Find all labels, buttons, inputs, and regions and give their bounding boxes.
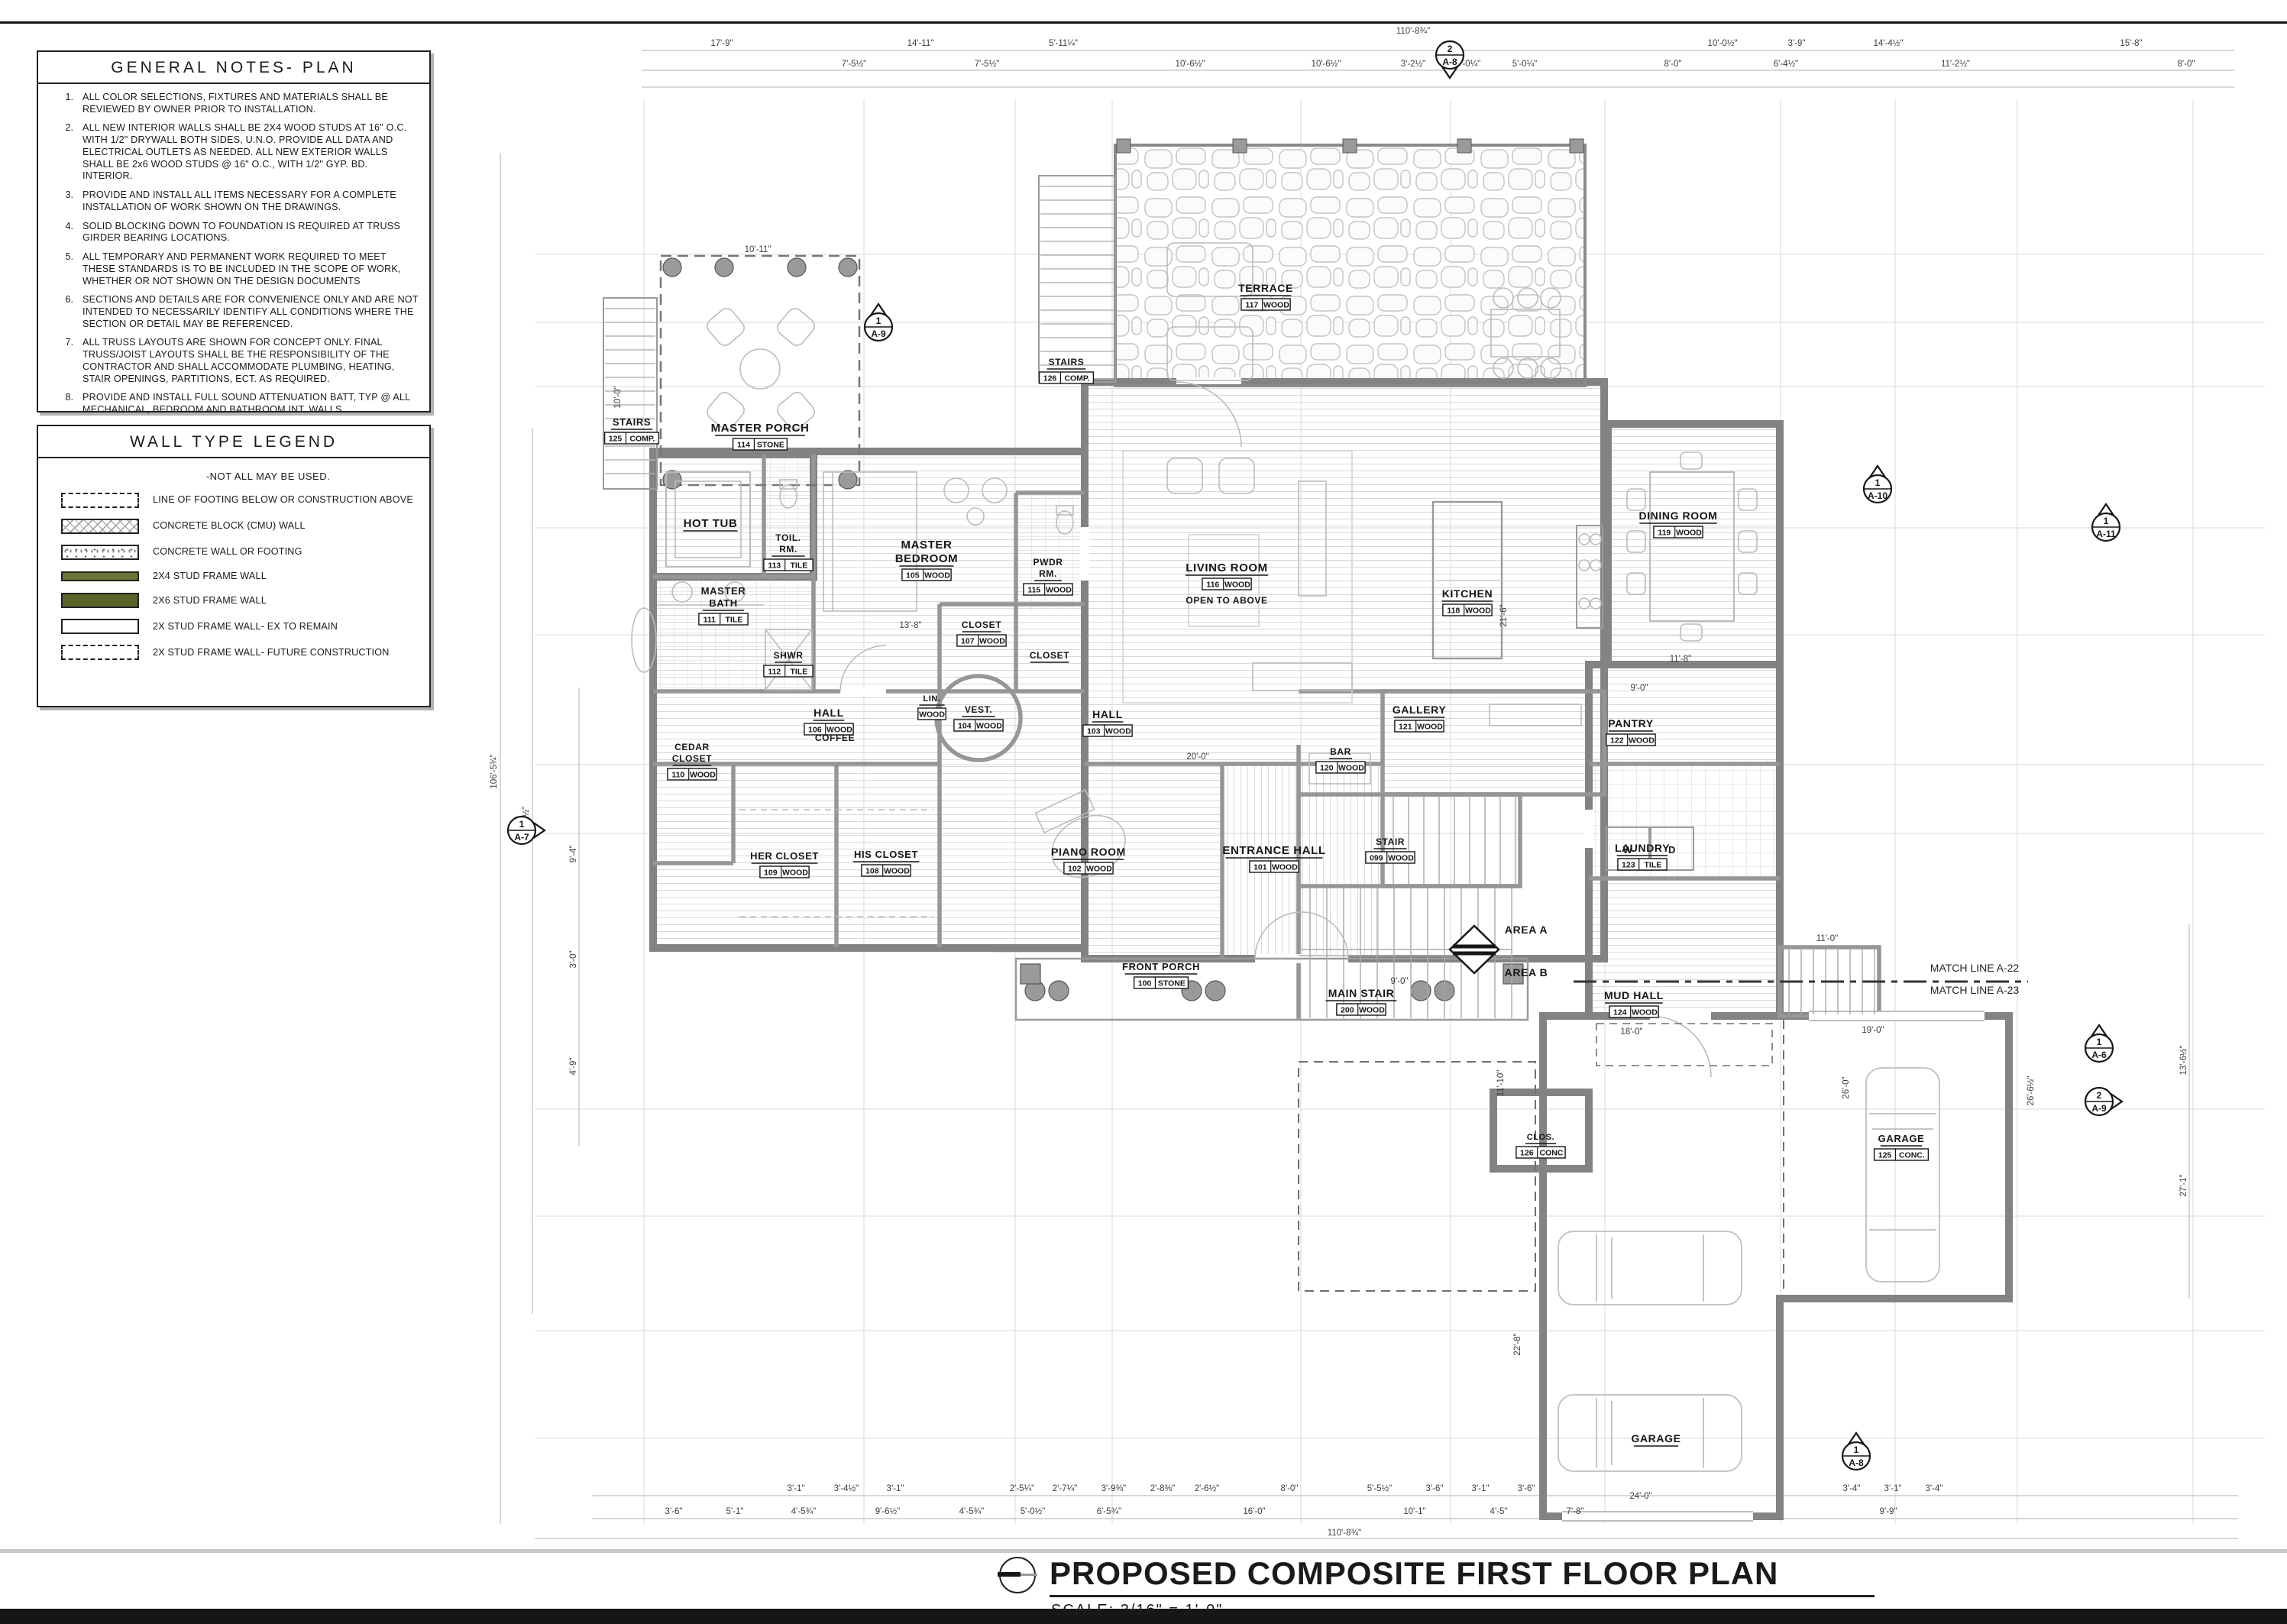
match-line-label: MATCH LINE A-22: [1930, 962, 2020, 974]
room-label-kitchen: KITCHEN118WOOD: [1442, 587, 1493, 616]
svg-text:120: 120: [1320, 764, 1334, 773]
svg-text:HER CLOSET: HER CLOSET: [750, 850, 819, 862]
svg-text:MAIN STAIR: MAIN STAIR: [1328, 987, 1395, 999]
svg-text:119: 119: [1658, 529, 1671, 538]
dimension-text: 26'-6½": [2027, 1076, 2036, 1106]
section-marker-a-9-2: 2A-9: [2085, 1088, 2122, 1115]
dimension-text: 5'-11¼": [1049, 39, 1078, 48]
room-label-master-bedroom: MASTERBEDROOM105WOOD: [895, 539, 959, 581]
dimension-text: 3'-6": [665, 1507, 683, 1516]
svg-text:STAIRS: STAIRS: [1049, 357, 1085, 367]
svg-text:WOOD: WOOD: [924, 571, 950, 581]
dimension-text: 13'-6½": [2179, 1046, 2188, 1076]
section-marker-a-6-1: 1A-6: [2085, 1025, 2113, 1062]
svg-text:2: 2: [1448, 44, 1453, 54]
svg-text:TERRACE: TERRACE: [1238, 282, 1293, 294]
dimension-text: 11'-0": [1816, 934, 1838, 943]
svg-text:HOT TUB: HOT TUB: [684, 517, 738, 530]
section-marker-a-7-1: 1A-7: [508, 817, 545, 844]
svg-text:114: 114: [737, 441, 750, 450]
svg-text:GALLERY: GALLERY: [1393, 704, 1447, 716]
dimension-text: 6'-5¾": [1097, 1507, 1122, 1516]
svg-text:PANTRY: PANTRY: [1608, 717, 1654, 730]
svg-text:BATH: BATH: [709, 597, 738, 609]
svg-text:TILE: TILE: [1645, 861, 1662, 870]
dimension-text: 3'-9": [1788, 39, 1806, 48]
svg-text:WOOD: WOOD: [1086, 865, 1112, 874]
title-block: PROPOSED COMPOSITE FIRST FLOOR PLAN SCAL…: [998, 1555, 2067, 1619]
dimension-text: 3'-6": [1426, 1484, 1444, 1493]
dimension-text: 10'-0": [613, 386, 623, 408]
dimension-text: 14'-4½": [1874, 39, 1904, 48]
svg-text:TILE: TILE: [791, 561, 808, 571]
dimension-text: 4'-5¾": [791, 1507, 817, 1516]
dimension-text: 3'-4": [1843, 1484, 1861, 1493]
svg-text:GARAGE: GARAGE: [1631, 1432, 1680, 1444]
room-label-master-porch: MASTER PORCH114STONE: [711, 422, 810, 450]
dimension-text: 8'-0": [2178, 60, 2195, 69]
label-open-to-above: OPEN TO ABOVE: [1186, 595, 1267, 606]
svg-text:WOOD: WOOD: [1272, 863, 1298, 872]
svg-text:1: 1: [876, 315, 881, 326]
svg-text:A-8: A-8: [1849, 1457, 1864, 1468]
svg-text:WOOD: WOOD: [690, 771, 716, 780]
svg-text:A-7: A-7: [514, 832, 529, 843]
svg-text:101: 101: [1253, 863, 1267, 872]
dimension-text: 3'-6": [1518, 1484, 1535, 1493]
svg-text:WOOD: WOOD: [976, 722, 1002, 731]
svg-text:2: 2: [2097, 1090, 2102, 1101]
section-marker-a-11-1: 1A-11: [2092, 504, 2120, 541]
svg-text:BAR: BAR: [1330, 746, 1351, 757]
svg-text:STONE: STONE: [757, 441, 784, 450]
svg-text:102: 102: [1068, 865, 1082, 874]
dimension-text: 17'-9": [710, 39, 733, 48]
svg-text:113: 113: [768, 561, 781, 571]
svg-text:WOOD: WOOD: [1046, 586, 1072, 595]
dimension-text: 2'-6½": [1195, 1484, 1220, 1493]
room-label-closet-coat: CLOSET: [1030, 650, 1069, 662]
room-label-main-stair: MAIN STAIR200WOOD: [1326, 987, 1397, 1015]
svg-text:MASTER PORCH: MASTER PORCH: [711, 422, 810, 435]
room-label-terrace: TERRACE117WOOD: [1238, 282, 1293, 310]
svg-text:109: 109: [764, 869, 778, 878]
dimension-text: 5'-1": [726, 1507, 744, 1516]
room-label-pantry: PANTRY122WOOD: [1606, 717, 1655, 746]
dimension-text: 110'-8¾": [1328, 1529, 1361, 1538]
dimension-text: 4'-9": [569, 1058, 578, 1076]
svg-text:MASTER: MASTER: [701, 585, 746, 597]
room-label-stairs-125: STAIRS125COMP.: [605, 416, 659, 444]
dimension-text: 18'-0": [1620, 1027, 1642, 1037]
svg-text:1: 1: [2097, 1037, 2102, 1047]
dimension-text: 3'-0": [569, 951, 578, 969]
section-marker-a-8-2: 2A-8: [1436, 41, 1464, 78]
svg-text:CONC: CONC: [1539, 1149, 1563, 1158]
svg-text:COMP.: COMP.: [1064, 374, 1089, 383]
dimension-text: 9'-9": [1880, 1507, 1897, 1516]
svg-text:STAIR: STAIR: [1376, 836, 1405, 847]
svg-text:1: 1: [2104, 516, 2109, 526]
svg-text:100: 100: [1138, 979, 1152, 988]
svg-text:A-9: A-9: [2091, 1103, 2107, 1114]
title-underline: [1050, 1595, 1875, 1597]
dimension-text: 22'-8": [1513, 1333, 1522, 1355]
svg-text:TOIL.: TOIL.: [775, 532, 801, 543]
svg-text:SHWR: SHWR: [773, 650, 803, 661]
dimension-text: 3'-1": [1884, 1484, 1902, 1493]
svg-text:HALL: HALL: [1092, 708, 1123, 720]
svg-text:WOOD: WOOD: [1417, 723, 1443, 732]
room-label-gallery: GALLERY121WOOD: [1393, 704, 1447, 732]
label-coffee: COFFEE: [815, 733, 855, 743]
dimension-text: 3'-4": [1926, 1484, 1943, 1493]
svg-text:MUD HALL: MUD HALL: [1604, 989, 1664, 1001]
dimension-text: 5'-0½": [1021, 1507, 1046, 1516]
svg-text:WOOD: WOOD: [1359, 1006, 1385, 1015]
svg-text:CLOSET: CLOSET: [962, 620, 1001, 630]
dimension-text: 3'-1": [887, 1484, 904, 1493]
dimension-text: 8'-0": [1664, 60, 1682, 69]
svg-text:CLOS.: CLOS.: [1527, 1133, 1555, 1142]
dimension-text: 3'-9⅜": [1101, 1484, 1127, 1493]
svg-text:FRONT PORCH: FRONT PORCH: [1122, 961, 1200, 972]
dimension-text: 3'-1": [788, 1484, 805, 1493]
floor-plan-drawing: 110'-8¾"17'-9"14'-11"5'-11¼"10'-0½"3'-9"…: [0, 0, 2287, 1624]
sheet-title: PROPOSED COMPOSITE FIRST FLOOR PLAN: [1050, 1555, 1778, 1592]
dimension-text: 5'-5½": [1367, 1484, 1393, 1493]
svg-text:105: 105: [906, 571, 920, 581]
svg-text:123: 123: [1622, 861, 1635, 870]
dimension-text: 11'-10": [1496, 1070, 1506, 1097]
dimension-text: 4'-5": [1490, 1507, 1508, 1516]
area-label: AREA B: [1505, 966, 1548, 979]
svg-text:WOOD: WOOD: [1263, 301, 1289, 310]
svg-text:RM.: RM.: [779, 544, 797, 555]
svg-text:116: 116: [1206, 581, 1219, 590]
svg-text:112: 112: [768, 668, 781, 677]
svg-text:108: 108: [865, 867, 879, 876]
room-label-garage-2: GARAGE: [1631, 1432, 1680, 1446]
room-label-cedar-closet: CEDARCLOSET110WOOD: [668, 742, 717, 780]
dimension-text: 15'-8": [2120, 39, 2142, 48]
room-label-stairs-126: STAIRS126COMP.: [1040, 357, 1094, 383]
svg-text:WOOD: WOOD: [1465, 607, 1491, 616]
svg-text:A-11: A-11: [2096, 529, 2116, 539]
svg-text:A-10: A-10: [1868, 490, 1888, 501]
svg-text:WOOD: WOOD: [1388, 854, 1414, 863]
dimension-text: 9'-0": [1391, 977, 1409, 986]
svg-text:WOOD: WOOD: [1224, 581, 1250, 590]
dimension-text: 9'-0": [1631, 684, 1648, 693]
svg-text:COMP.: COMP.: [629, 435, 655, 444]
dimension-text: 9'-4": [569, 846, 578, 863]
dimension-text: 7'-8": [1567, 1507, 1584, 1516]
svg-text:STONE: STONE: [1158, 979, 1186, 988]
dimension-text: 16'-0": [1243, 1507, 1265, 1516]
dimension-text: 24'-0": [1629, 1492, 1651, 1501]
dimension-text: 20'-0": [1186, 752, 1208, 762]
dimension-text: 11'-8": [1670, 655, 1691, 664]
svg-text:WOOD: WOOD: [1629, 736, 1655, 746]
svg-text:WOOD: WOOD: [1338, 764, 1364, 773]
svg-text:DINING ROOM: DINING ROOM: [1638, 510, 1717, 522]
dimension-text: 10'-6½": [1176, 60, 1205, 69]
dimension-text: 6'-4½": [1774, 60, 1799, 69]
dimension-text: 2'-8⅜": [1150, 1484, 1176, 1493]
svg-text:124: 124: [1613, 1008, 1627, 1017]
dimension-text: 9'-6½": [875, 1507, 901, 1516]
dimension-text: 2'-5¼": [1010, 1484, 1035, 1493]
dimension-text: 10'-11": [745, 245, 771, 254]
svg-text:GARAGE: GARAGE: [1878, 1133, 1925, 1144]
room-label-garage-125: GARAGE125CONC.: [1875, 1133, 1929, 1160]
svg-text:HIS CLOSET: HIS CLOSET: [854, 849, 918, 860]
svg-text:LIVING ROOM: LIVING ROOM: [1186, 561, 1267, 574]
svg-text:122: 122: [1610, 736, 1624, 746]
svg-text:TILE: TILE: [791, 668, 808, 677]
svg-text:099: 099: [1370, 854, 1383, 863]
svg-text:200: 200: [1341, 1006, 1354, 1015]
room-label-front-porch: FRONT PORCH100STONE: [1122, 961, 1200, 988]
svg-text:ENTRANCE HALL: ENTRANCE HALL: [1222, 844, 1325, 857]
dimension-text: 2'-7¼": [1053, 1484, 1078, 1493]
svg-text:125: 125: [1878, 1151, 1892, 1160]
svg-text:PIANO ROOM: PIANO ROOM: [1051, 846, 1126, 858]
svg-text:WOOD: WOOD: [1676, 529, 1702, 538]
svg-text:TILE: TILE: [726, 616, 743, 625]
svg-text:RM.: RM.: [1039, 568, 1057, 579]
svg-text:KITCHEN: KITCHEN: [1442, 587, 1493, 600]
sheet-scale: SCALE: 3/16" = 1'-0": [1051, 1602, 2067, 1619]
svg-text:115: 115: [1027, 586, 1040, 595]
svg-text:1: 1: [1875, 477, 1881, 488]
svg-text:107: 107: [961, 637, 975, 646]
svg-text:WOOD: WOOD: [1105, 727, 1131, 736]
dimension-text: 3'-4½": [834, 1484, 859, 1493]
dimension-text: 10'-6½": [1312, 60, 1341, 69]
svg-text:1: 1: [519, 819, 525, 830]
room-label-mud-hall: MUD HALL124WOOD: [1604, 989, 1664, 1017]
title-reference-symbol: [998, 1557, 1037, 1590]
dimension-text: 10'-0½": [1708, 39, 1738, 48]
svg-text:126: 126: [1043, 374, 1057, 383]
svg-text:125: 125: [609, 435, 623, 444]
section-marker-a-9-1: 1A-9: [865, 304, 892, 341]
svg-text:121: 121: [1399, 723, 1412, 732]
svg-text:118: 118: [1447, 607, 1460, 616]
svg-text:A-9: A-9: [871, 328, 886, 339]
svg-text:117: 117: [1245, 301, 1258, 310]
dimension-text: 26'-0": [1842, 1076, 1851, 1098]
dimension-text: 106'-5¾": [490, 754, 499, 788]
svg-text:HALL: HALL: [814, 707, 844, 719]
svg-text:WOOD: WOOD: [1632, 1008, 1658, 1017]
dimension-text: 13'-8": [899, 621, 921, 630]
svg-text:A-6: A-6: [2091, 1050, 2107, 1060]
svg-text:110: 110: [671, 771, 684, 780]
svg-text:STAIRS: STAIRS: [613, 416, 651, 428]
label-dryer: D: [1668, 844, 1676, 856]
svg-text:104: 104: [958, 722, 972, 731]
dimension-text: 110'-8¾": [1396, 27, 1430, 36]
dimension-text: 10'-1": [1403, 1507, 1425, 1516]
match-line-label: MATCH LINE A-23: [1930, 984, 2020, 996]
svg-text:CEDAR: CEDAR: [674, 742, 710, 752]
svg-text:PWDR: PWDR: [1033, 557, 1063, 568]
room-label-hot-tub: HOT TUB: [683, 517, 737, 531]
dimension-text: 11'-2½": [1941, 60, 1970, 69]
svg-text:CLOSET: CLOSET: [672, 753, 712, 764]
dimension-text: 27'-1": [2179, 1174, 2188, 1196]
svg-text:WOOD: WOOD: [884, 867, 910, 876]
drawing-sheet: GENERAL NOTES- PLAN 1.ALL COLOR SELECTIO…: [0, 0, 2287, 1624]
dimension-text: 5'-0¼": [1512, 60, 1538, 69]
svg-text:111: 111: [704, 616, 717, 625]
dimension-text: 3'-2½": [1401, 60, 1426, 69]
svg-text:103: 103: [1087, 727, 1101, 736]
dimension-text: 4'-5¾": [959, 1507, 985, 1516]
dimension-text: 14'-11": [907, 39, 934, 48]
svg-text:126: 126: [1520, 1149, 1534, 1158]
dimension-text: 7'-5½": [842, 60, 867, 69]
svg-text:A-8: A-8: [1442, 57, 1457, 67]
dimension-text: 8'-0": [1281, 1484, 1299, 1493]
area-label: AREA A: [1505, 924, 1548, 936]
svg-text:MASTER: MASTER: [901, 539, 953, 552]
section-marker-a-10-1: 1A-10: [1864, 466, 1891, 503]
svg-text:CLOSET: CLOSET: [1030, 650, 1069, 661]
svg-text:CONC.: CONC.: [1899, 1151, 1925, 1160]
svg-text:WOOD: WOOD: [782, 869, 808, 878]
svg-text:WOOD: WOOD: [919, 710, 945, 720]
svg-text:LIN.: LIN.: [923, 694, 940, 704]
svg-text:WOOD: WOOD: [979, 637, 1005, 646]
dimension-text: 19'-0": [1862, 1026, 1884, 1035]
dimension-text: 21'-6": [1499, 604, 1509, 626]
dimension-text: 7'-5½": [975, 60, 1000, 69]
svg-text:BEDROOM: BEDROOM: [895, 552, 959, 565]
svg-text:VEST.: VEST.: [965, 704, 992, 715]
label-washer: W: [1623, 844, 1633, 856]
svg-text:1: 1: [1854, 1444, 1859, 1455]
dimension-text: 3'-1": [1472, 1484, 1490, 1493]
